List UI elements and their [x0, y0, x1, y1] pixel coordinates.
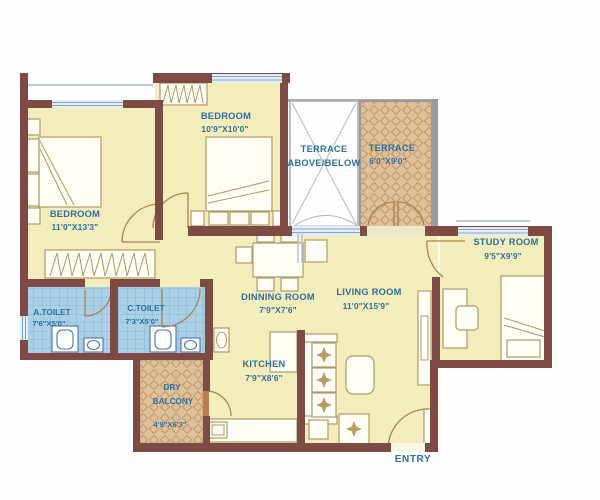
room-label-dining: DINNING ROOM [241, 292, 315, 302]
pillow [27, 174, 39, 206]
wall-drybalcony-right-b [203, 416, 210, 445]
washbasin-bowl [88, 341, 100, 350]
room-label-terrace: TERRACE [369, 143, 416, 153]
bed-double [206, 137, 272, 211]
pillow [27, 139, 39, 172]
sofa-back [304, 334, 312, 424]
wall-toilet-bottom [20, 353, 213, 360]
room-label-bedroom-2: BEDROOM [201, 111, 251, 121]
window-study [458, 227, 528, 236]
room-label-c-toilet: C.TOILET [127, 304, 164, 313]
dining-chair [281, 278, 298, 291]
terrace-door-sill [367, 226, 425, 236]
pillow [251, 212, 269, 225]
terrace-right-parapet [431, 99, 438, 228]
room-dims-study: 9'5"X9'9" [484, 251, 522, 261]
cabinet [305, 240, 327, 262]
dining-table [253, 243, 303, 277]
projection-line-study [456, 220, 530, 222]
room-label-living: LIVING ROOM [336, 287, 401, 297]
wall-living-right [430, 360, 438, 452]
wc-seat [155, 330, 171, 349]
wall-kitchen-living [297, 330, 305, 452]
room-dims-living: 11'0"X15'9" [343, 301, 390, 311]
room-label-terrace-open-1: TERRACE [301, 144, 348, 154]
room-dims-c-toilet: 7'3"X5'0" [125, 317, 159, 326]
bedside-table [191, 211, 204, 226]
wall-toilet-top-c [200, 279, 213, 287]
room-dims-dry-balcony: 4'9"X6'3" [153, 420, 187, 429]
room-dims-bedroom-2: 10'9"X10'0" [201, 124, 248, 134]
bedside-table [26, 119, 40, 135]
tv-unit [418, 291, 431, 385]
study-chair [456, 306, 478, 330]
room-dims-dining: 7'9"X7'6" [259, 305, 297, 315]
sofa-armrest [304, 334, 337, 342]
dining-chair [236, 247, 252, 263]
pillow [507, 340, 540, 357]
bedside-table [26, 208, 40, 224]
room-label-dry-balcony-1: DRY [164, 383, 182, 392]
room-label-bedroom-1: BEDROOM [50, 209, 100, 219]
room-label-dry-balcony-2: BALCONY [153, 397, 194, 406]
dry-balcony-door-leaf [203, 391, 209, 417]
wall-drybalcony-right-a [203, 360, 210, 391]
side-table [309, 420, 328, 439]
wall-bottom [133, 443, 430, 452]
washbasin-bowl [185, 341, 197, 350]
wall-toilet-top-b [110, 279, 160, 287]
wall-drybalcony-left [133, 360, 140, 445]
wall-study-bottom [432, 360, 552, 368]
floor-plan-drawing: BEDROOM 11'0"X13'3" BEDROOM 10'9"X10'0" … [0, 0, 600, 500]
room-label-a-toilet: A.TOILET [33, 308, 70, 317]
room-dims-terrace: 6'0"X9'0" [369, 156, 407, 166]
wall-study-left [432, 277, 440, 368]
window-bedroom1 [52, 100, 123, 108]
room-dims-a-toilet: 7'6"X5'0" [32, 319, 66, 328]
coffee-table [346, 356, 374, 394]
room-dims-bedroom-1: 11'0"X13'3" [52, 222, 99, 232]
floor-plan: BEDROOM 11'0"X13'3" BEDROOM 10'9"X10'0" … [0, 0, 600, 500]
wall-toilet-top-a [20, 279, 85, 287]
wall-bedroom2-right [280, 73, 288, 236]
room-label-kitchen: KITCHEN [242, 359, 285, 369]
projection-line-bedroom1 [28, 84, 153, 86]
dining-chair [257, 278, 274, 291]
window-bedroom2 [212, 74, 282, 83]
room-label-study: STUDY ROOM [473, 237, 538, 247]
pillow [230, 212, 249, 225]
wall-between-toilets [110, 287, 118, 353]
room-label-terrace-open-2: ABOVE/BELOW [288, 158, 361, 168]
entry-opening [391, 443, 425, 452]
pillow [209, 212, 228, 225]
entry-label: ENTRY [395, 454, 432, 465]
wall-entry-corner [425, 443, 438, 452]
wall-study-right [544, 228, 552, 368]
wall-ctoilet-right [205, 287, 213, 360]
wc-seat [57, 330, 73, 349]
room-dims-kitchen: 7'9"X8'6" [245, 373, 283, 383]
window-a-toilet-vent [20, 316, 28, 340]
wall-bedroom1-right [155, 100, 163, 240]
